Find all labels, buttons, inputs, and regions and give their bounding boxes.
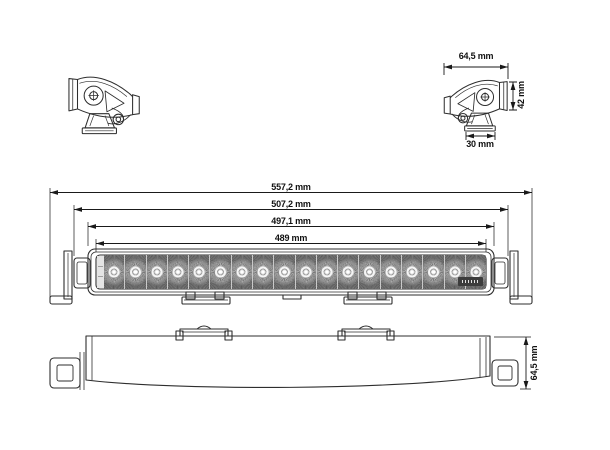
led-reflector xyxy=(124,255,145,289)
led-reflector xyxy=(295,255,316,289)
dim-side-height-label: 42 mm xyxy=(516,75,526,115)
top-view xyxy=(50,326,518,390)
led-reflector xyxy=(146,255,167,289)
led-reflector xyxy=(273,255,294,289)
led-reflector xyxy=(167,255,188,289)
front-mount-foot-a xyxy=(182,292,230,304)
top-view-body xyxy=(86,336,490,387)
led-reflector xyxy=(188,255,209,289)
led-reflector xyxy=(358,255,379,289)
technical-drawing-canvas: 64,5 mm 42 mm 30 mm 557,2 mm 507,2 mm 49… xyxy=(0,0,610,450)
top-view-dimensions xyxy=(494,337,531,389)
led-reflector xyxy=(316,255,337,289)
brand-logo-text xyxy=(462,280,479,283)
dim-front-lens-label: 489 mm xyxy=(251,233,331,243)
top-view-tab-b xyxy=(338,326,394,340)
front-bracket-right xyxy=(510,251,532,304)
dim-front-overall-label: 557,2 mm xyxy=(251,182,331,192)
dim-top-depth-label: 64,5 mm xyxy=(529,333,539,393)
led-reflector xyxy=(422,255,443,289)
dim-front-housing-label: 497,1 mm xyxy=(251,216,331,226)
side-view-right xyxy=(444,80,507,131)
front-center-tab xyxy=(283,295,301,299)
front-mount-foot-b xyxy=(344,292,392,304)
dim-side-depth-label: 64,5 mm xyxy=(446,51,506,61)
led-reflector xyxy=(401,255,422,289)
led-reflector xyxy=(209,255,230,289)
brand-logo-badge xyxy=(458,277,483,286)
dim-front-mount-label: 507,2 mm xyxy=(251,199,331,209)
led-reflector xyxy=(231,255,252,289)
front-bracket-left xyxy=(50,251,72,304)
led-reflector xyxy=(104,255,124,289)
led-strip xyxy=(104,255,486,289)
dim-side-base-label: 30 mm xyxy=(450,139,510,149)
top-view-tab-a xyxy=(176,326,232,340)
led-reflector xyxy=(380,255,401,289)
top-view-knob-right xyxy=(492,360,518,386)
top-view-knob-left xyxy=(50,352,84,390)
led-reflector xyxy=(252,255,273,289)
led-reflector xyxy=(337,255,358,289)
side-view-left xyxy=(69,77,139,133)
